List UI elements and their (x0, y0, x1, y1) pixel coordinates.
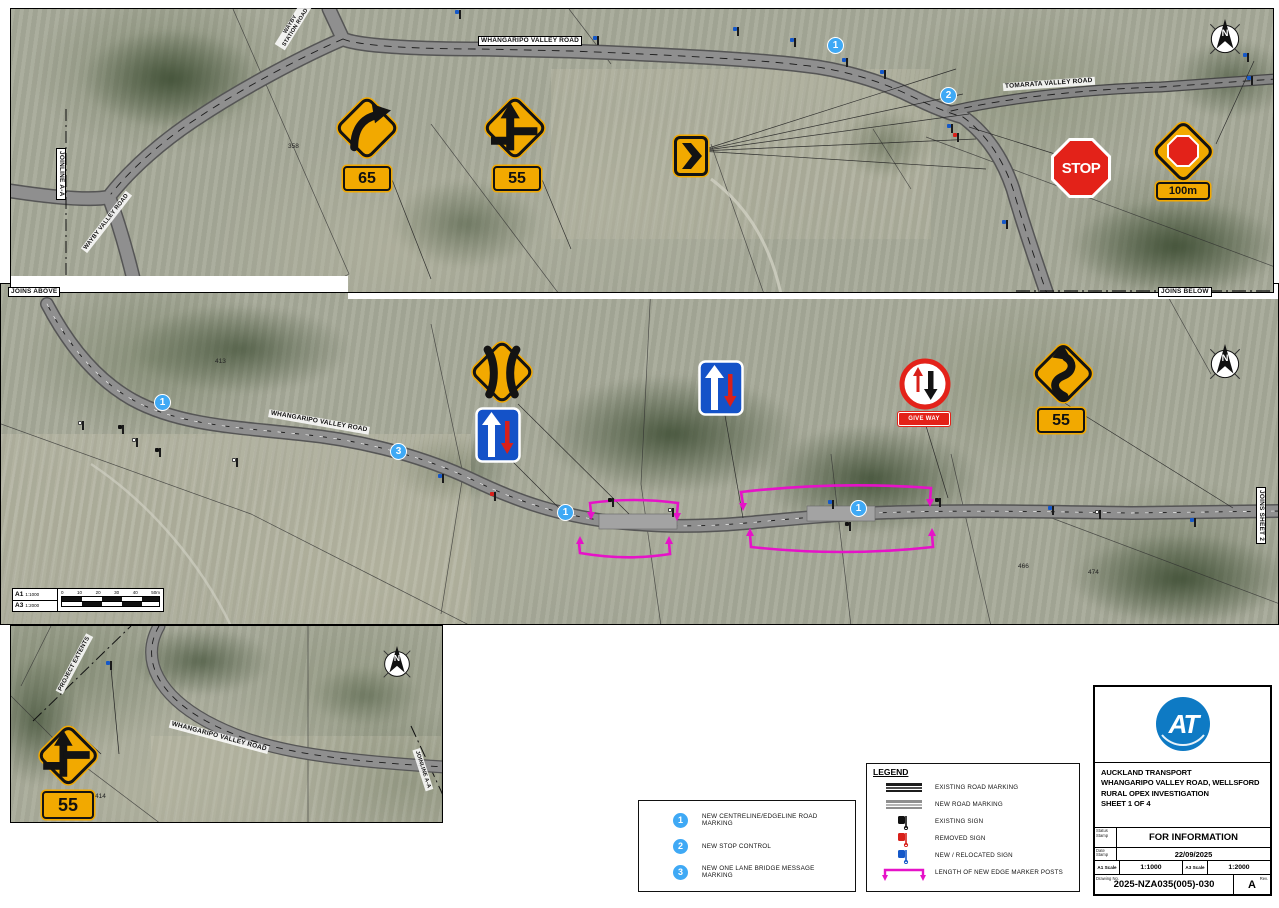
a1-scale-label: A1 (15, 591, 23, 598)
winding-road-sign (1032, 342, 1094, 404)
note-item: 2 NEW STOP CONTROL (649, 839, 845, 854)
give-way-plate: GIVE WAY (898, 412, 950, 426)
advisory-speed-plate: 55 (493, 166, 541, 191)
drawing-no-label: Drawing No. (1096, 876, 1119, 881)
marker-post-symbol (232, 458, 238, 467)
a3-scale-label: A3 (15, 602, 23, 609)
date-row: Date Stamp 22/09/2025 (1095, 848, 1270, 862)
legend-label: LENGTH OF NEW EDGE MARKER POSTS (935, 869, 1063, 876)
joins-sheet2-label: JOINS SHEET 2 (1256, 487, 1266, 544)
new-sign-symbol (828, 500, 834, 509)
note-item: 1 NEW CENTRELINE/EDGELINE ROAD MARKING (649, 813, 845, 828)
note-marker-1: 1 (557, 504, 574, 521)
new-sign-symbol (1002, 220, 1008, 229)
parcel-number: 414 (95, 793, 106, 800)
new-sign-symbol (106, 661, 112, 670)
project-subtitle: RURAL OPEX INVESTIGATION (1101, 789, 1264, 800)
scale-bar-segments (61, 602, 160, 607)
priority-over-oncoming-sign (475, 407, 521, 463)
legend-item: NEW ROAD MARKING (873, 796, 1073, 813)
svg-text:N: N (394, 653, 400, 663)
scale-tick: 0 (61, 590, 64, 596)
advisory-speed-plate: 65 (343, 166, 391, 191)
logo-cell: AT (1095, 687, 1270, 763)
note-text: NEW STOP CONTROL (702, 843, 771, 850)
svg-text:N: N (1222, 353, 1229, 364)
a1-scale-value: 1:1000 (25, 592, 39, 597)
note-marker-2: 2 (940, 87, 957, 104)
new-sign-symbol (733, 27, 739, 36)
legend-label: REMOVED SIGN (935, 835, 986, 842)
note-text: NEW ONE LANE BRIDGE MESSAGE MARKING (702, 865, 845, 879)
new-sign-symbol (1048, 506, 1054, 515)
legend-label: EXISTING SIGN (935, 818, 983, 825)
rev-label: Rev. (1260, 876, 1268, 881)
removed-sign-symbol (490, 492, 496, 501)
marker-post-symbol (668, 508, 674, 517)
marker-post-symbol (78, 421, 84, 430)
give-way-arrows-icon (899, 358, 951, 410)
drawing-sheet: WHANGARIPO VALLEY ROAD TOMARATA VALLEY R… (0, 0, 1279, 908)
stop-ahead-sign (1152, 120, 1214, 182)
legend-label: NEW / RELOCATED SIGN (935, 852, 1013, 859)
new-sign-symbol (455, 10, 461, 19)
legend-title: LEGEND (873, 767, 1073, 777)
note-marker-1: 1 (827, 37, 844, 54)
note-marker-1: 1 (154, 394, 171, 411)
joinline-label-top: JOINLINE A-A (56, 148, 66, 200)
legend-label: EXISTING ROAD MARKING (935, 784, 1018, 791)
notes-box: 1 NEW CENTRELINE/EDGELINE ROAD MARKING 2… (638, 800, 856, 892)
removed-sign-icon (897, 831, 911, 847)
date-stamp-label: Date Stamp (1095, 848, 1117, 861)
note-marker-1: 1 (850, 500, 867, 517)
new-sign-symbol (842, 58, 848, 67)
joins-below-label: JOINS BELOW (1158, 287, 1212, 297)
give-way-to-oncoming-sign (899, 358, 951, 410)
legend-item: REMOVED SIGN (873, 830, 1073, 847)
note-item: 3 NEW ONE LANE BRIDGE MESSAGE MARKING (649, 865, 845, 880)
side-road-advisory-sign (483, 96, 547, 160)
status-row: Status Stamp FOR INFORMATION (1095, 828, 1270, 848)
new-sign-symbol (947, 124, 953, 133)
a3-scale-value: 1:2000 (1208, 861, 1270, 874)
revision-cell: Rev. A (1233, 875, 1270, 894)
north-compass-icon: N (1204, 18, 1246, 60)
note-number-badge: 3 (673, 865, 688, 880)
advisory-speed-plate: 55 (1037, 408, 1085, 433)
note-text: NEW CENTRELINE/EDGELINE ROAD MARKING (702, 813, 845, 827)
road-label-whangaripo-top: WHANGARIPO VALLEY ROAD (478, 36, 582, 46)
edge-marker-posts-icon (881, 865, 927, 881)
new-sign-symbol (790, 38, 796, 47)
new-sign-symbol (593, 36, 599, 45)
scale-tick: 30 (114, 590, 119, 596)
advisory-speed-plate: 55 (42, 791, 94, 819)
priority-arrows-icon (475, 407, 521, 463)
scale-tick: 20 (96, 590, 101, 596)
marker-post-symbol (1095, 510, 1101, 519)
svg-text:AT: AT (1167, 709, 1201, 739)
roads (47, 304, 1279, 526)
panel-step-gap (11, 276, 348, 293)
a3-scale-label: A3 Scale (1183, 861, 1208, 874)
note-number-badge: 2 (673, 839, 688, 854)
new-sign-symbol (1247, 76, 1253, 85)
parcel-number: 466 (1018, 563, 1029, 570)
distance-plate: 100m (1156, 182, 1210, 200)
legend-item: LENGTH OF NEW EDGE MARKER POSTS (873, 864, 1073, 881)
priority-over-oncoming-sign (698, 360, 744, 416)
a1-scale-value: 1:1000 (1120, 861, 1183, 874)
new-relocated-sign-icon (897, 848, 911, 864)
existing-road-marking-icon (886, 782, 922, 793)
chevron-right-icon (677, 139, 705, 173)
existing-sign-symbol (155, 448, 161, 457)
priority-arrows-icon (698, 360, 744, 416)
svg-text:N: N (1222, 28, 1229, 39)
winding-road-icon (1032, 342, 1094, 404)
removed-sign-symbol (953, 133, 959, 142)
parcel-number: 413 (215, 358, 226, 365)
company-name: AUCKLAND TRANSPORT (1101, 768, 1264, 779)
note-number-badge: 1 (673, 813, 688, 828)
auckland-transport-logo: AT (1154, 695, 1212, 753)
new-sign-symbol (438, 474, 444, 483)
project-name: WHANGARIPO VALLEY ROAD, WELLSFORD (1101, 778, 1264, 789)
marker-post-symbol (132, 438, 138, 447)
legend-item: NEW / RELOCATED SIGN (873, 847, 1073, 864)
a3-scale-value: 1:2000 (25, 603, 39, 608)
joins-above-label: JOINS ABOVE (8, 287, 60, 297)
legend-item: EXISTING SIGN (873, 813, 1073, 830)
existing-sign-symbol (845, 522, 851, 531)
new-road-marking-icon (886, 799, 922, 810)
existing-sign-symbol (935, 498, 941, 507)
note-marker-3: 3 (390, 443, 407, 460)
drawing-number-row: Drawing No. 2025-NZA035(005)-030 Rev. A (1095, 875, 1270, 894)
rev-value: A (1248, 879, 1256, 891)
parcel-number: 474 (1088, 569, 1099, 576)
sheet-number: SHEET 1 OF 4 (1101, 799, 1264, 810)
curve-right-icon (335, 96, 399, 160)
existing-sign-symbol (118, 425, 124, 434)
project-text-cell: AUCKLAND TRANSPORT WHANGARIPO VALLEY ROA… (1095, 763, 1270, 828)
scale-tick: 10 (77, 590, 82, 596)
title-block: AT AUCKLAND TRANSPORT WHANGARIPO VALLEY … (1093, 685, 1272, 896)
parcel-number: 358 (288, 143, 299, 150)
staggered-side-roads-icon (37, 724, 99, 786)
side-road-advisory-sign-inset (37, 724, 99, 786)
narrow-bridge-icon (470, 340, 534, 404)
chevron-marker-sign (674, 136, 708, 176)
scale-tick: 50m (151, 590, 160, 596)
legend-box: LEGEND EXISTING ROAD MARKING NEW ROAD MA… (866, 763, 1080, 892)
narrow-bridge-sign (470, 340, 534, 404)
scale-tick: 40 (133, 590, 138, 596)
scale-row: A1 Scale 1:1000 A3 Scale 1:2000 (1095, 861, 1270, 875)
new-sign-symbol (1190, 518, 1196, 527)
status-value: FOR INFORMATION (1117, 828, 1270, 847)
date-value: 22/09/2025 (1117, 848, 1270, 861)
curve-advisory-sign (335, 96, 399, 160)
legend-label: NEW ROAD MARKING (935, 801, 1003, 808)
legend-item: EXISTING ROAD MARKING (873, 779, 1073, 796)
north-compass-icon: N (1204, 343, 1246, 385)
status-stamp-label: Status Stamp (1095, 828, 1117, 847)
new-sign-symbol (880, 70, 886, 79)
scale-bar: A11:1000 A31:2000 0 10 20 30 40 50m (12, 588, 164, 612)
north-compass-icon: N (378, 645, 416, 683)
existing-sign-icon (897, 814, 911, 830)
a1-scale-label: A1 Scale (1095, 861, 1120, 874)
side-road-icon (483, 96, 547, 160)
stop-sign: STOP (1051, 138, 1111, 198)
existing-sign-symbol (608, 498, 614, 507)
